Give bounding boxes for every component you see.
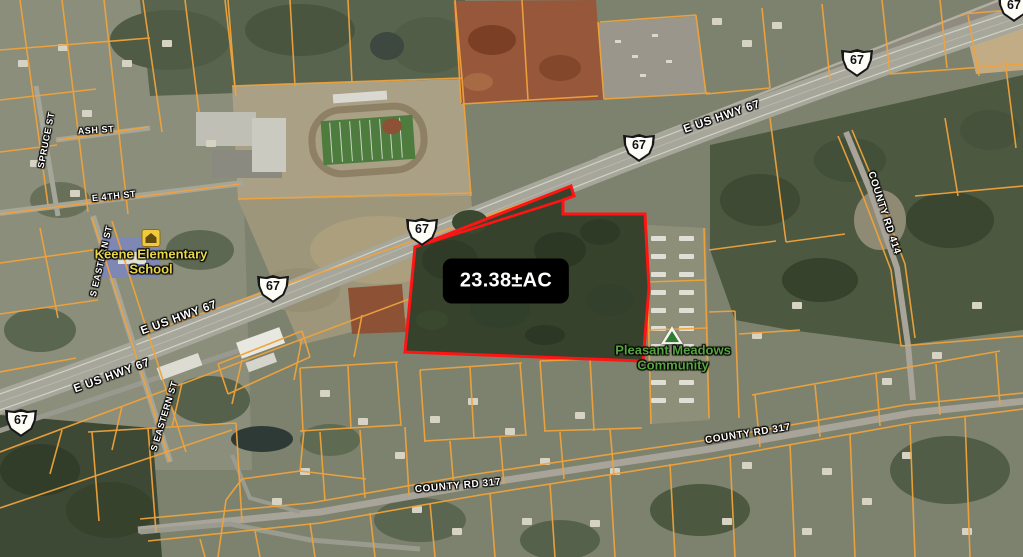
us-67-shield: 67 — [623, 134, 655, 162]
us-67-shield: 67 — [5, 409, 37, 437]
us-67-shield: 67 — [998, 0, 1023, 22]
parcel-area-label[interactable]: 23.38±AC — [443, 259, 569, 304]
community-label-line1: Pleasant Meadows — [615, 343, 731, 358]
park-triangle-icon — [661, 326, 683, 344]
poi-label-pleasant-meadows-community: Pleasant Meadows Community — [615, 343, 731, 372]
school-icon — [142, 229, 161, 247]
us-67-shield: 67 — [257, 275, 289, 303]
satellite-map[interactable]: SPRUCE ST ASH ST E 4TH ST S EASTERN ST S… — [0, 0, 1023, 557]
us-67-shield: 67 — [406, 218, 438, 246]
poi-label-keene-elementary-school: Keene Elementary School — [95, 247, 208, 276]
school-label-line1: Keene Elementary — [95, 247, 208, 262]
school-label-line2: School — [95, 262, 208, 277]
us-67-shield: 67 — [841, 49, 873, 77]
community-label-line2: Community — [615, 358, 731, 373]
